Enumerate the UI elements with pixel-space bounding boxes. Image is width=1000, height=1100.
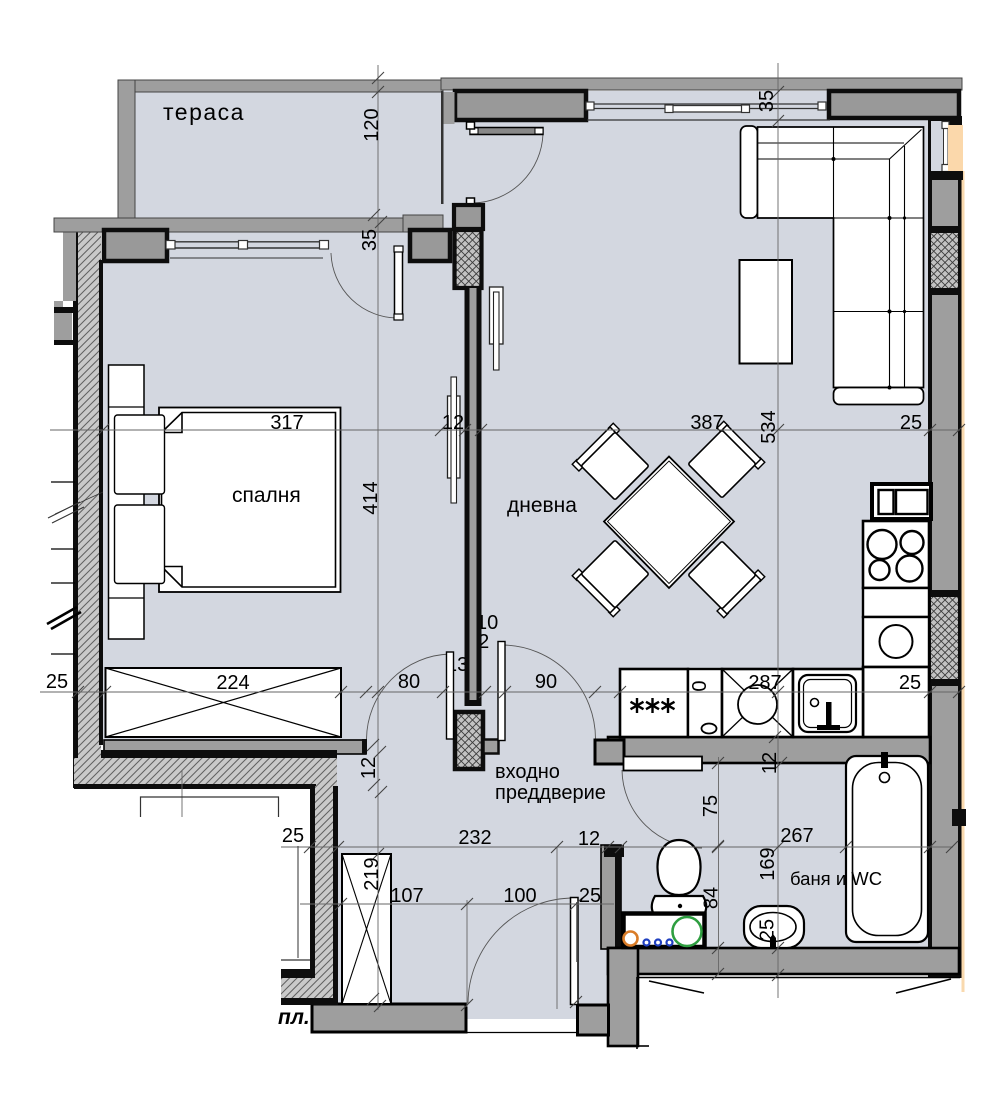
svg-text:219: 219: [361, 857, 383, 890]
svg-text:90: 90: [535, 671, 557, 693]
svg-text:317: 317: [270, 412, 303, 434]
svg-text:тераса: тераса: [163, 99, 245, 125]
svg-text:224: 224: [216, 672, 249, 694]
svg-text:баня и WC: баня и WC: [790, 868, 882, 889]
svg-text:12: 12: [358, 757, 380, 779]
svg-text:35: 35: [359, 229, 381, 251]
svg-text:25: 25: [579, 885, 601, 907]
svg-text:12: 12: [442, 412, 464, 434]
svg-text:25: 25: [46, 671, 68, 693]
svg-text:дневна: дневна: [507, 494, 577, 517]
svg-text:0: 0: [689, 680, 711, 691]
svg-text:входно: входно: [495, 761, 560, 783]
svg-text:пл.: пл.: [278, 1006, 310, 1029]
svg-text:80: 80: [398, 671, 420, 693]
svg-text:100: 100: [503, 885, 536, 907]
svg-text:534: 534: [758, 410, 780, 443]
svg-text:414: 414: [360, 481, 382, 514]
svg-text:25: 25: [899, 672, 921, 694]
svg-text:12: 12: [759, 752, 781, 774]
svg-text:287: 287: [748, 672, 781, 694]
svg-text:25: 25: [757, 919, 779, 941]
svg-text:25: 25: [900, 412, 922, 434]
svg-text:169: 169: [757, 847, 779, 880]
svg-text:спалня: спалня: [232, 484, 301, 507]
svg-text:120: 120: [361, 108, 383, 141]
svg-text:25: 25: [282, 825, 304, 847]
svg-text:75: 75: [700, 795, 722, 817]
svg-text:12: 12: [578, 828, 600, 850]
svg-text:35: 35: [756, 90, 778, 112]
svg-text:232: 232: [458, 827, 491, 849]
svg-text:84: 84: [701, 887, 723, 909]
svg-text:преддверие: преддверие: [495, 782, 606, 804]
svg-text:267: 267: [780, 825, 813, 847]
svg-text:387: 387: [690, 412, 723, 434]
svg-text:107: 107: [390, 885, 423, 907]
